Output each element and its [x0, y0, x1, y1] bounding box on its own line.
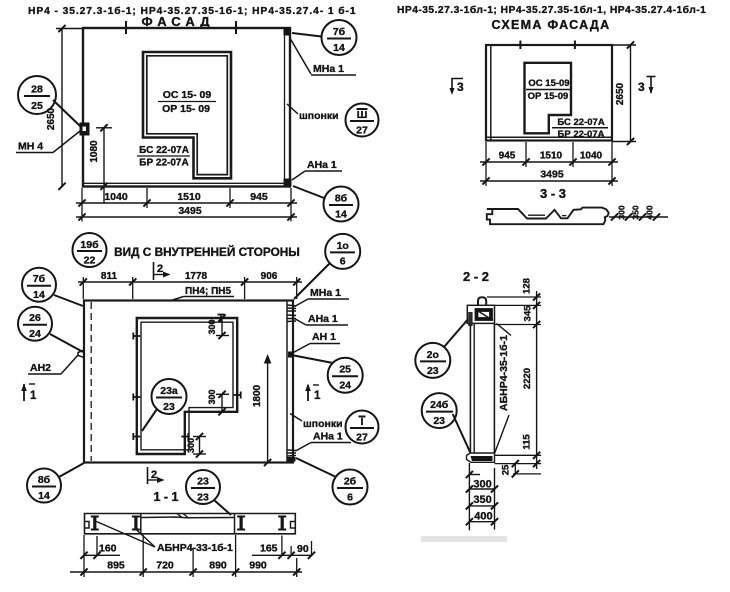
svg-text:19б: 19б	[80, 239, 99, 251]
svg-text:БР 22-07А: БР 22-07А	[139, 158, 188, 169]
svg-text:300: 300	[186, 438, 196, 453]
svg-text:345: 345	[523, 305, 534, 322]
svg-text:1510: 1510	[540, 151, 563, 162]
svg-text:26: 26	[29, 312, 41, 324]
svg-text:160: 160	[99, 543, 117, 555]
svg-text:2: 2	[151, 469, 157, 481]
svg-text:27: 27	[356, 432, 368, 444]
svg-text:811: 811	[101, 271, 118, 282]
svg-text:3: 3	[638, 80, 645, 94]
svg-text:2220: 2220	[522, 368, 533, 389]
svg-text:128: 128	[522, 278, 533, 294]
svg-text:23а: 23а	[160, 385, 178, 397]
svg-text:400: 400	[645, 205, 655, 219]
svg-text:ВИД С ВНУТРЕННЕЙ СТОРОНЫ: ВИД С ВНУТРЕННЕЙ СТОРОНЫ	[114, 245, 300, 259]
svg-text:3 - 3: 3 - 3	[540, 186, 566, 201]
svg-text:МНа 1: МНа 1	[313, 63, 344, 75]
svg-text:МНа 1: МНа 1	[310, 287, 341, 299]
svg-text:6: 6	[347, 492, 353, 504]
svg-text:ОР 15-09: ОР 15-09	[528, 91, 569, 102]
svg-text:24б: 24б	[430, 399, 449, 411]
svg-text:АНа 1: АНа 1	[307, 159, 337, 171]
svg-text:14: 14	[333, 42, 345, 54]
svg-text:АНа 1: АНа 1	[313, 431, 343, 443]
svg-text:1 - 1: 1 - 1	[153, 490, 178, 504]
svg-text:1040: 1040	[104, 191, 128, 203]
svg-text:ОР 15- 09: ОР 15- 09	[162, 103, 210, 115]
svg-text:14: 14	[33, 289, 45, 301]
svg-text:6: 6	[340, 256, 346, 268]
svg-text:895: 895	[107, 560, 125, 572]
svg-text:БС 22-07А: БС 22-07А	[139, 145, 189, 156]
svg-text:ПН4; ПН5: ПН4; ПН5	[185, 286, 231, 297]
svg-text:23: 23	[163, 401, 175, 413]
svg-text:8б: 8б	[38, 474, 51, 486]
svg-text:400: 400	[474, 511, 492, 523]
svg-text:23: 23	[197, 476, 209, 488]
svg-text:115: 115	[522, 434, 533, 450]
svg-text:24: 24	[339, 380, 351, 392]
svg-text:300: 300	[617, 205, 627, 219]
svg-text:24: 24	[29, 328, 41, 340]
svg-text:МН 4: МН 4	[18, 141, 43, 153]
svg-text:2: 2	[157, 263, 163, 275]
svg-text:990: 990	[249, 560, 267, 572]
svg-text:7б: 7б	[33, 273, 46, 285]
svg-text:БС 22-07А: БС 22-07А	[557, 117, 605, 128]
svg-text:АБНР4-33-1б-1: АБНР4-33-1б-1	[157, 542, 233, 554]
svg-text:АН 1: АН 1	[312, 331, 336, 343]
svg-text:1040: 1040	[580, 151, 603, 162]
svg-text:27: 27	[356, 125, 368, 137]
svg-text:300: 300	[207, 319, 217, 334]
svg-text:90: 90	[297, 543, 309, 555]
svg-text:1778: 1778	[185, 271, 208, 282]
svg-text:23: 23	[197, 492, 209, 504]
svg-text:АБНР4-35-1б-1: АБНР4-35-1б-1	[498, 335, 510, 411]
svg-text:14: 14	[38, 490, 50, 502]
svg-text:СХЕМА ФАСАДА: СХЕМА ФАСАДА	[492, 18, 611, 32]
svg-text:1510: 1510	[177, 191, 201, 203]
svg-text:350: 350	[473, 494, 491, 506]
svg-text:945: 945	[499, 151, 516, 162]
svg-text:3495: 3495	[540, 169, 564, 181]
svg-text:300: 300	[207, 389, 217, 404]
svg-text:8б: 8б	[335, 193, 348, 205]
svg-text:945: 945	[250, 191, 268, 203]
svg-text:23: 23	[433, 415, 445, 427]
svg-text:шпонки: шпонки	[299, 110, 339, 122]
svg-text:165: 165	[260, 543, 278, 555]
svg-text:ОС 15-09: ОС 15-09	[528, 78, 569, 89]
svg-text:1о: 1о	[337, 240, 349, 252]
svg-text:14: 14	[335, 209, 347, 221]
svg-text:25: 25	[501, 464, 512, 475]
svg-text:2 - 2: 2 - 2	[463, 269, 489, 284]
svg-text:1: 1	[30, 390, 37, 402]
svg-text:25: 25	[31, 100, 43, 112]
svg-text:1080: 1080	[89, 140, 100, 163]
svg-text:1: 1	[314, 390, 321, 402]
svg-text:шпонки: шпонки	[303, 418, 343, 430]
svg-text:ФАСАД: ФАСАД	[141, 14, 214, 29]
svg-text:Ш: Ш	[357, 109, 368, 121]
svg-text:28: 28	[31, 84, 43, 96]
svg-text:2о: 2о	[427, 349, 439, 361]
svg-text:906: 906	[261, 271, 278, 282]
svg-text:ОС 15- 09: ОС 15- 09	[163, 89, 212, 101]
svg-text:БР 22-07А: БР 22-07А	[558, 129, 605, 140]
svg-text:НР4-35.27.3-1бл-1; НР4-35.27.3: НР4-35.27.3-1бл-1; НР4-35.27.35-1бл-1, Н…	[397, 4, 706, 16]
svg-text:720: 720	[156, 560, 174, 572]
svg-text:1800: 1800	[252, 384, 263, 407]
svg-text:890: 890	[209, 560, 227, 572]
svg-text:I: I	[361, 416, 364, 428]
svg-text:25: 25	[339, 364, 351, 376]
svg-text:2б: 2б	[344, 476, 357, 488]
svg-text:АНа 1: АНа 1	[308, 313, 338, 325]
svg-text:АН2: АН2	[30, 362, 51, 374]
svg-text:2650: 2650	[615, 82, 626, 105]
svg-text:3495: 3495	[178, 205, 202, 217]
svg-text:23: 23	[427, 365, 439, 377]
svg-text:300: 300	[473, 479, 491, 491]
svg-text:7б: 7б	[333, 26, 346, 38]
svg-text:350: 350	[631, 205, 641, 219]
svg-text:3: 3	[457, 80, 464, 94]
svg-text:22: 22	[84, 255, 96, 267]
